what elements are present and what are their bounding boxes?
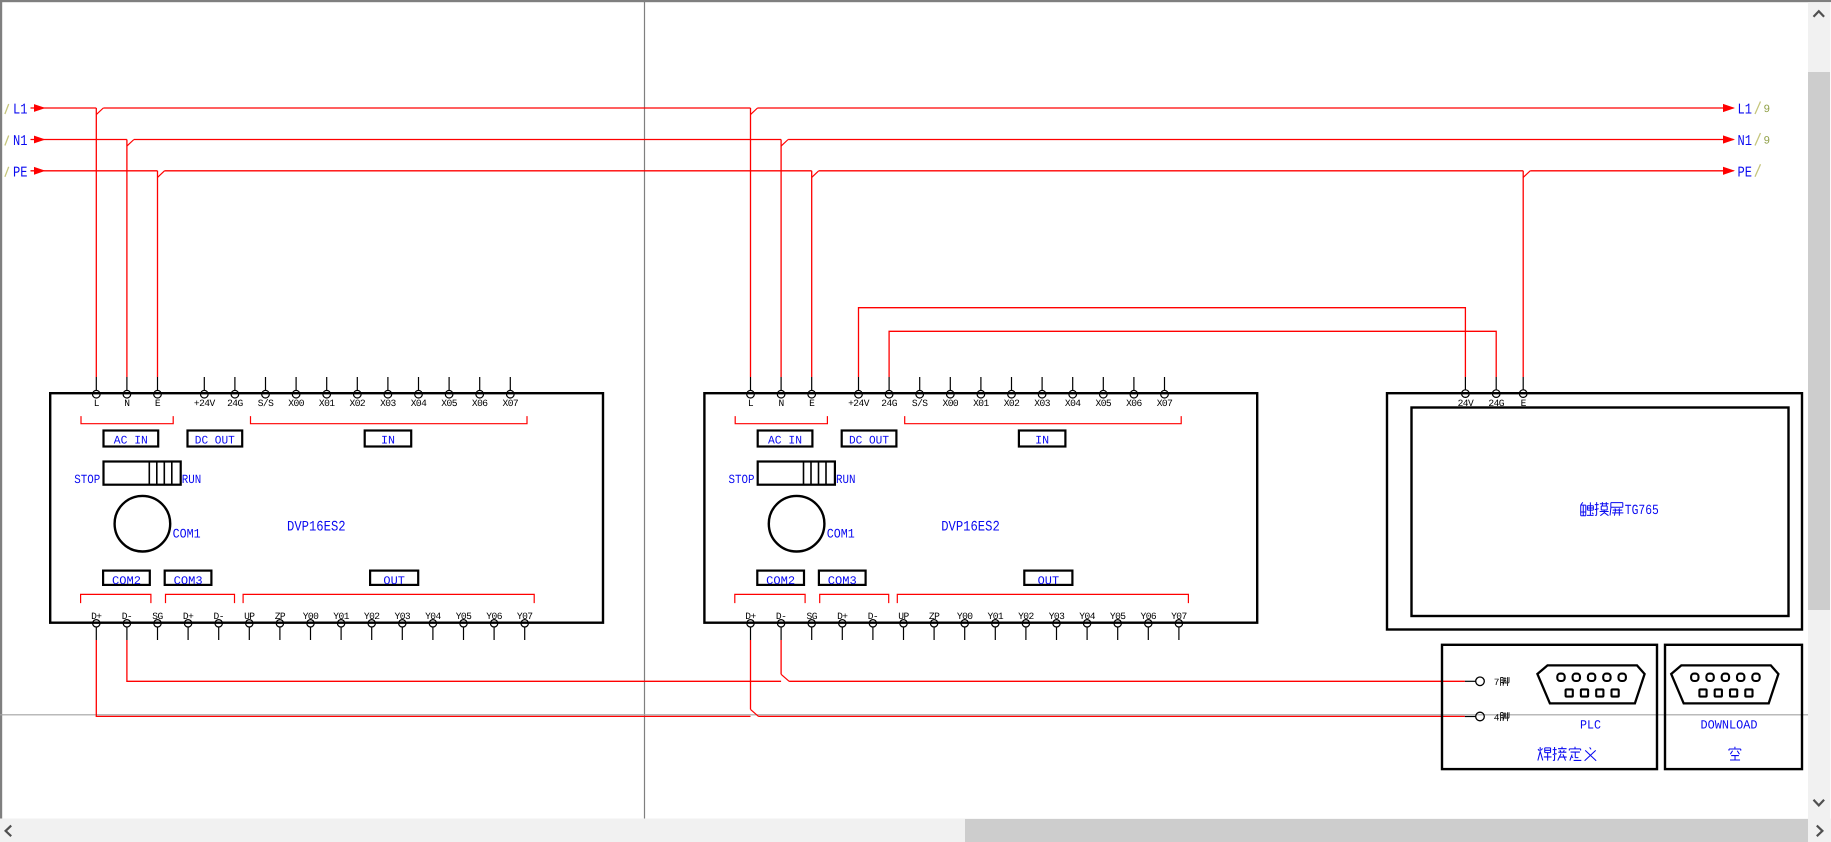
svg-text:D-: D-: [213, 611, 223, 622]
svg-text:+24V: +24V: [848, 398, 870, 409]
svg-text:9: 9: [1764, 104, 1771, 116]
svg-text:D-: D-: [122, 611, 132, 622]
svg-text:DOWNLOAD: DOWNLOAD: [1701, 718, 1758, 732]
svg-text:D-: D-: [868, 611, 878, 622]
svg-text:D-: D-: [776, 611, 786, 622]
svg-text:N: N: [778, 398, 783, 409]
svg-text:N: N: [124, 398, 129, 409]
svg-text:Y02: Y02: [1018, 611, 1034, 622]
svg-text:Y05: Y05: [1110, 611, 1126, 622]
svg-text:E: E: [155, 398, 161, 409]
svg-text:PLC: PLC: [1580, 718, 1601, 732]
svg-text:X05: X05: [441, 398, 457, 409]
svg-text:E: E: [809, 398, 815, 409]
svg-text:STOP: STOP: [729, 473, 755, 487]
svg-text:Y00: Y00: [957, 611, 973, 622]
svg-text:Y03: Y03: [394, 611, 410, 622]
svg-text:COM3: COM3: [828, 575, 857, 588]
svg-text:S/S: S/S: [912, 398, 928, 409]
svg-text:RUN: RUN: [836, 473, 856, 487]
svg-text:24G: 24G: [1488, 398, 1504, 409]
svg-text:RUN: RUN: [182, 473, 202, 487]
svg-text:24G: 24G: [227, 398, 243, 409]
svg-text:X06: X06: [472, 398, 488, 409]
svg-text:UP: UP: [244, 611, 255, 622]
svg-text:4: 4: [1494, 712, 1500, 723]
svg-text:UP: UP: [898, 611, 909, 622]
svg-text:D+: D+: [91, 611, 102, 622]
svg-text:X07: X07: [1157, 398, 1173, 409]
svg-text:D+: D+: [745, 611, 756, 622]
svg-text:Y00: Y00: [303, 611, 319, 622]
svg-text:STOP: STOP: [74, 473, 100, 487]
svg-text:DVP16ES2: DVP16ES2: [287, 520, 346, 536]
svg-text:X03: X03: [380, 398, 396, 409]
svg-text:OUT: OUT: [383, 575, 405, 588]
svg-text:D+: D+: [183, 611, 194, 622]
svg-text:DVP16ES2: DVP16ES2: [941, 520, 1000, 536]
svg-text:Y04: Y04: [425, 611, 441, 622]
svg-text:+24V: +24V: [194, 398, 216, 409]
svg-text:X02: X02: [1004, 398, 1020, 409]
svg-text:X01: X01: [319, 398, 335, 409]
svg-text:Y04: Y04: [1079, 611, 1095, 622]
svg-text:COM2: COM2: [112, 575, 141, 588]
svg-text:OUT: OUT: [1038, 575, 1060, 588]
svg-text:IN: IN: [381, 434, 395, 447]
svg-text:DC OUT: DC OUT: [195, 434, 235, 447]
svg-text:ZP: ZP: [275, 611, 286, 622]
svg-text:SG: SG: [152, 611, 163, 622]
svg-text:AC IN: AC IN: [114, 434, 148, 447]
svg-text:DC OUT: DC OUT: [849, 434, 889, 447]
svg-text:Y01: Y01: [333, 611, 349, 622]
svg-text:L1: L1: [13, 102, 28, 119]
svg-text:AC IN: AC IN: [768, 434, 802, 447]
svg-text:IN: IN: [1035, 434, 1049, 447]
svg-text:X06: X06: [1126, 398, 1142, 409]
svg-text:COM1: COM1: [173, 527, 201, 542]
svg-text:Y07: Y07: [517, 611, 533, 622]
svg-text:N1: N1: [1738, 133, 1753, 150]
svg-text:X03: X03: [1034, 398, 1050, 409]
svg-text:7: 7: [1494, 677, 1500, 688]
svg-text:L: L: [94, 398, 100, 409]
svg-text:Y06: Y06: [1140, 611, 1156, 622]
svg-text:X04: X04: [1065, 398, 1081, 409]
svg-text:Y02: Y02: [364, 611, 380, 622]
svg-text:COM3: COM3: [174, 575, 203, 588]
svg-text:E: E: [1521, 398, 1527, 409]
svg-text:COM1: COM1: [827, 527, 855, 542]
svg-text:ZP: ZP: [929, 611, 940, 622]
svg-text:9: 9: [1764, 136, 1771, 148]
svg-text:X05: X05: [1095, 398, 1111, 409]
svg-text:X00: X00: [942, 398, 958, 409]
svg-text:Y06: Y06: [486, 611, 502, 622]
svg-text:D+: D+: [837, 611, 848, 622]
svg-text:X07: X07: [502, 398, 518, 409]
svg-text:N1: N1: [13, 133, 28, 150]
svg-text:L1: L1: [1738, 102, 1753, 119]
svg-text:24V: 24V: [1458, 398, 1474, 409]
svg-text:24G: 24G: [881, 398, 897, 409]
svg-text:X02: X02: [349, 398, 365, 409]
svg-text:L: L: [748, 398, 754, 409]
svg-text:Y03: Y03: [1049, 611, 1065, 622]
svg-text:SG: SG: [806, 611, 817, 622]
svg-text:PE: PE: [13, 164, 28, 181]
svg-text:Y01: Y01: [987, 611, 1003, 622]
svg-text:Y07: Y07: [1171, 611, 1187, 622]
svg-text:X01: X01: [973, 398, 989, 409]
svg-text:Y05: Y05: [456, 611, 472, 622]
svg-text:PE: PE: [1738, 164, 1753, 181]
svg-text:COM2: COM2: [766, 575, 795, 588]
svg-text:X04: X04: [411, 398, 427, 409]
svg-text:TG765: TG765: [1625, 503, 1659, 519]
svg-text:S/S: S/S: [258, 398, 274, 409]
svg-text:X00: X00: [288, 398, 304, 409]
